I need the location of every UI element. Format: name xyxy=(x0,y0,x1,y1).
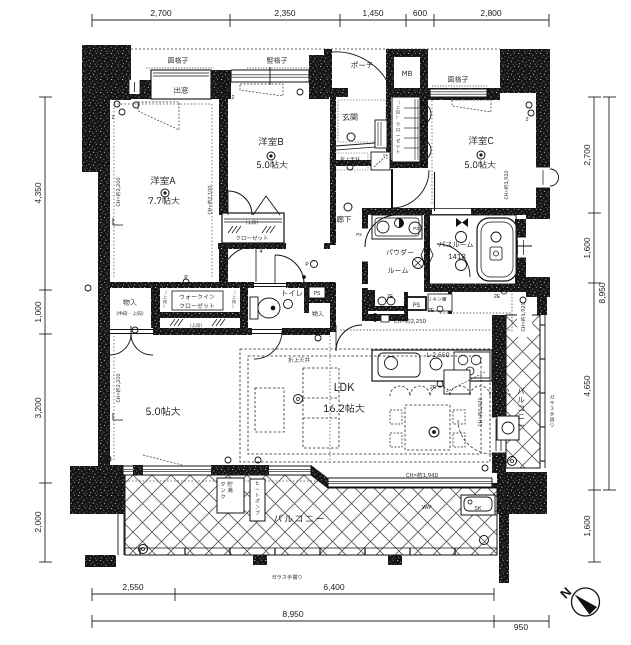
svg-text:W/P: W/P xyxy=(422,505,432,511)
svg-text:4,350: 4,350 xyxy=(33,182,43,204)
svg-text:2,800: 2,800 xyxy=(480,8,502,18)
svg-text:2,350: 2,350 xyxy=(274,8,296,18)
svg-text:4: 4 xyxy=(259,249,262,255)
svg-text:2E: 2E xyxy=(494,294,501,300)
svg-text:1,600: 1,600 xyxy=(582,515,592,537)
svg-text:2: 2 xyxy=(526,117,529,123)
svg-text:8,950: 8,950 xyxy=(282,609,304,619)
svg-text:2E: 2E xyxy=(428,308,435,314)
svg-text:1,000: 1,000 xyxy=(33,301,43,323)
svg-text:2,700: 2,700 xyxy=(582,144,592,166)
svg-text:2,700: 2,700 xyxy=(150,8,172,18)
svg-text:P2: P2 xyxy=(356,232,362,237)
svg-text:2: 2 xyxy=(112,115,115,121)
svg-text:1,450: 1,450 xyxy=(362,8,384,18)
svg-text:1,600: 1,600 xyxy=(582,237,592,259)
svg-text:2: 2 xyxy=(226,466,229,472)
svg-text:600: 600 xyxy=(413,8,427,18)
svg-text:2,000: 2,000 xyxy=(33,511,43,533)
svg-text:3,200: 3,200 xyxy=(33,397,43,419)
svg-text:P2: P2 xyxy=(413,226,419,231)
svg-text:8,950: 8,950 xyxy=(597,282,607,304)
svg-text:4,650: 4,650 xyxy=(582,375,592,397)
svg-text:950: 950 xyxy=(514,622,528,632)
svg-text:2,550: 2,550 xyxy=(122,582,144,592)
svg-text:2E: 2E xyxy=(387,294,394,300)
svg-text:2E: 2E xyxy=(430,385,437,391)
svg-text:6,400: 6,400 xyxy=(323,582,345,592)
svg-text:2: 2 xyxy=(232,95,235,101)
